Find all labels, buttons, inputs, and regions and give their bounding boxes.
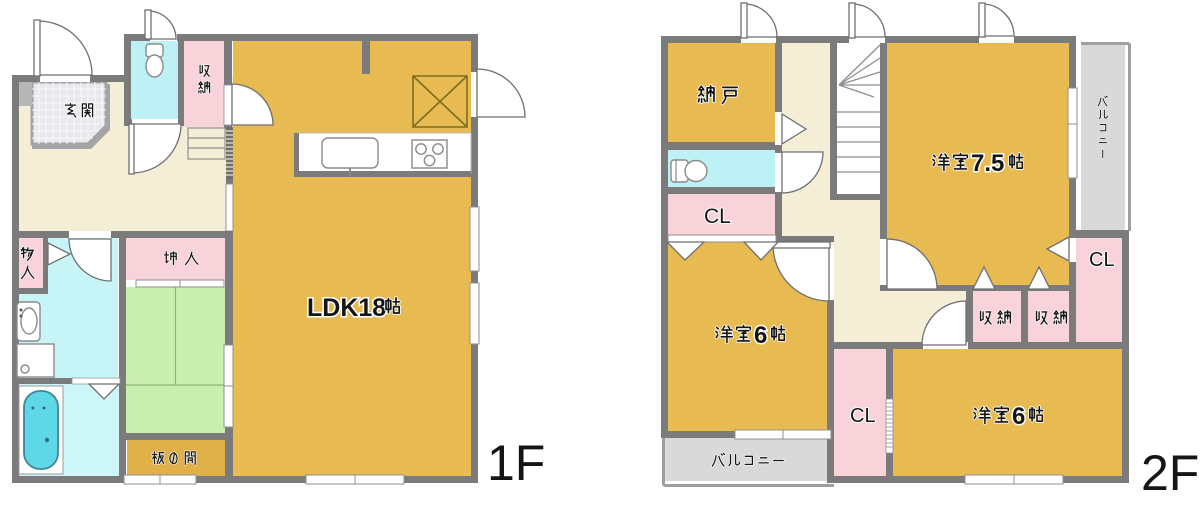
svg-text:CL: CL [850, 405, 876, 427]
svg-text:6: 6 [1012, 403, 1025, 430]
svg-text:6: 6 [754, 322, 767, 349]
svg-text:CL: CL [704, 205, 731, 228]
svg-text:7.5: 7.5 [971, 150, 1004, 177]
svg-text:2F: 2F [1141, 445, 1199, 501]
svg-text:LDK18: LDK18 [307, 294, 386, 322]
svg-text:CL: CL [1089, 249, 1115, 271]
svg-text:1F: 1F [487, 435, 545, 491]
